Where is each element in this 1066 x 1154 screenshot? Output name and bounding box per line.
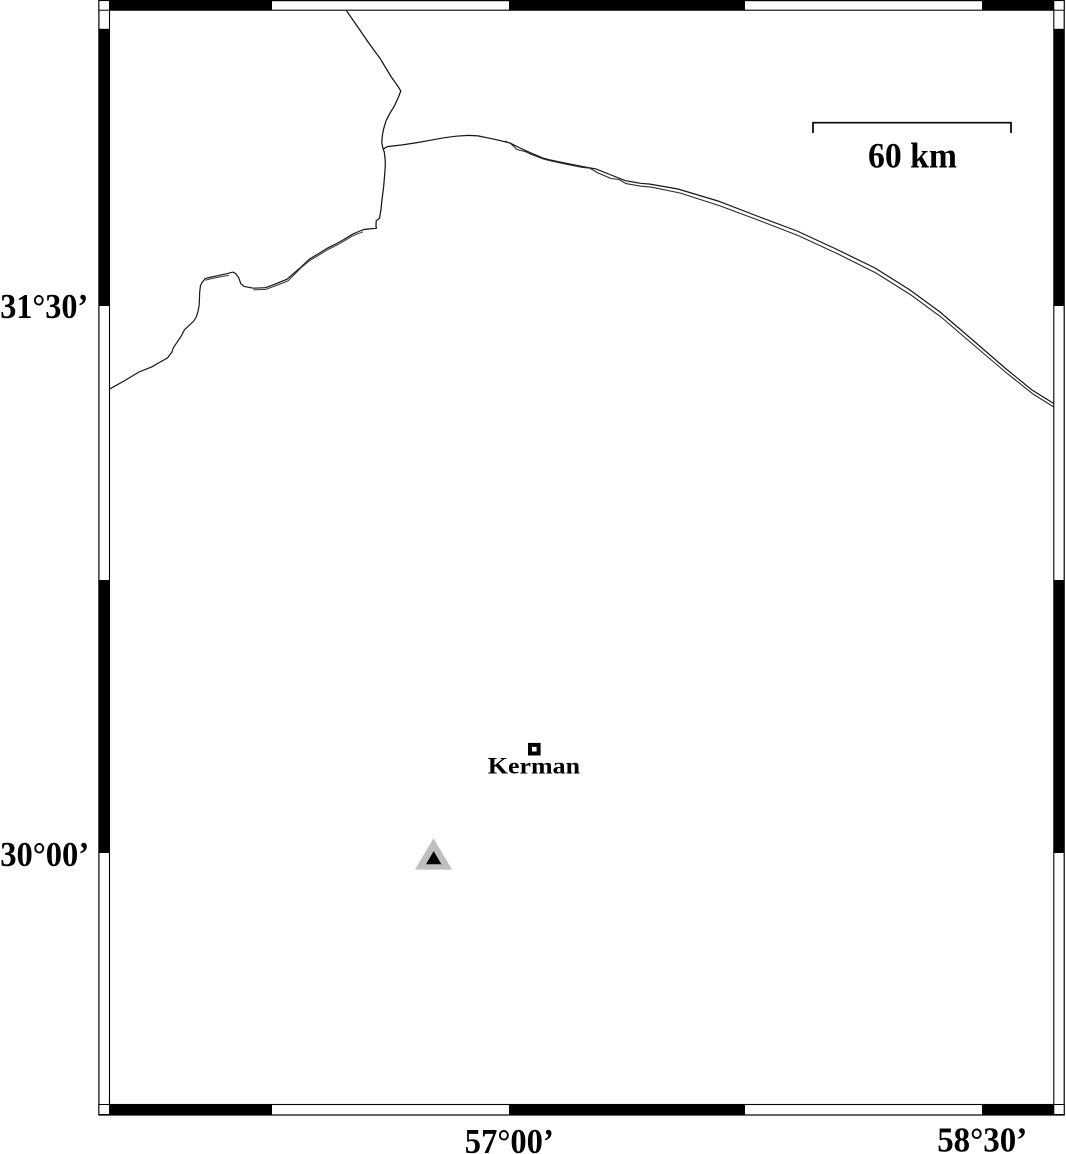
svg-text:30°00’: 30°00’ [0, 835, 89, 874]
svg-text:60 km: 60 km [868, 136, 957, 176]
svg-text:58°30’: 58°30’ [937, 1121, 1027, 1154]
svg-text:31°30’: 31°30’ [0, 287, 88, 326]
svg-text:57°00’: 57°00’ [465, 1122, 554, 1154]
svg-text:Kerman: Kerman [488, 753, 581, 778]
